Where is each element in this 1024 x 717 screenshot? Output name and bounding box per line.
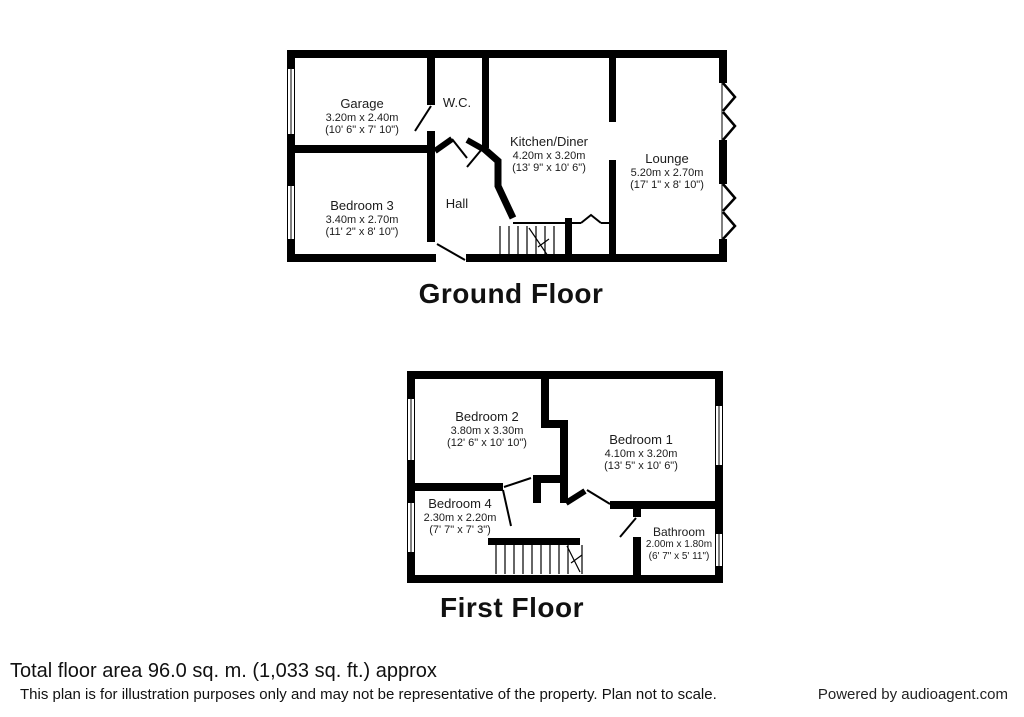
room-label-lounge: Lounge 5.20m x 2.70m (17' 1" x 8' 10"): [630, 152, 704, 191]
room-name: Garage: [325, 97, 399, 112]
disclaimer-text: This plan is for illustration purposes o…: [20, 686, 717, 703]
room-label-bedroom-1: Bedroom 1 4.10m x 3.20m (13' 5" x 10' 6"…: [604, 433, 678, 472]
total-floor-area-text: Total floor area 96.0 sq. m. (1,033 sq. …: [10, 660, 437, 683]
room-dim-metric: 2.30m x 2.20m: [424, 512, 497, 524]
room-label-garage: Garage 3.20m x 2.40m (10' 6" x 7' 10"): [325, 97, 399, 136]
room-dim-imperial: (10' 6" x 7' 10"): [325, 124, 399, 136]
room-dim-metric: 4.20m x 3.20m: [510, 150, 588, 162]
room-dim-imperial: (11' 2" x 8' 10"): [326, 226, 399, 238]
first-floor-title: First Floor: [440, 592, 584, 624]
room-name: Lounge: [630, 152, 704, 167]
room-dim-imperial: (13' 5" x 10' 6"): [604, 460, 678, 472]
room-name: Bedroom 4: [424, 497, 497, 512]
room-label-bedroom-4: Bedroom 4 2.30m x 2.20m (7' 7" x 7' 3"): [424, 497, 497, 536]
room-label-wc: W.C.: [443, 96, 471, 111]
room-dim-metric: 5.20m x 2.70m: [630, 167, 704, 179]
room-label-kitchen-diner: Kitchen/Diner 4.20m x 3.20m (13' 9" x 10…: [510, 135, 588, 174]
room-name: Bedroom 3: [326, 199, 399, 214]
room-label-bathroom: Bathroom 2.00m x 1.80m (6' 7" x 5' 11"): [646, 526, 712, 562]
powered-by-credit: Powered by audioagent.com: [818, 686, 1008, 703]
room-dim-metric: 3.20m x 2.40m: [325, 112, 399, 124]
room-dim-imperial: (7' 7" x 7' 3"): [424, 524, 497, 536]
floor-plan-page: Garage 3.20m x 2.40m (10' 6" x 7' 10") W…: [0, 0, 1024, 717]
room-label-hall: Hall: [446, 197, 468, 212]
room-dim-imperial: (6' 7" x 5' 11"): [646, 551, 712, 562]
room-name: W.C.: [443, 96, 471, 111]
room-name: Bedroom 2: [447, 410, 527, 425]
room-label-bedroom-3: Bedroom 3 3.40m x 2.70m (11' 2" x 8' 10"…: [326, 199, 399, 238]
room-dim-metric: 2.00m x 1.80m: [646, 539, 712, 550]
room-dim-metric: 3.40m x 2.70m: [326, 214, 399, 226]
room-name: Hall: [446, 197, 468, 212]
room-name: Kitchen/Diner: [510, 135, 588, 150]
room-dim-metric: 3.80m x 3.30m: [447, 425, 527, 437]
room-name: Bathroom: [646, 526, 712, 539]
room-dim-imperial: (12' 6" x 10' 10"): [447, 437, 527, 449]
room-dim-imperial: (13' 9" x 10' 6"): [510, 162, 588, 174]
room-name: Bedroom 1: [604, 433, 678, 448]
ground-floor-title: Ground Floor: [419, 278, 604, 310]
room-label-bedroom-2: Bedroom 2 3.80m x 3.30m (12' 6" x 10' 10…: [447, 410, 527, 449]
room-dim-metric: 4.10m x 3.20m: [604, 448, 678, 460]
room-dim-imperial: (17' 1" x 8' 10"): [630, 179, 704, 191]
